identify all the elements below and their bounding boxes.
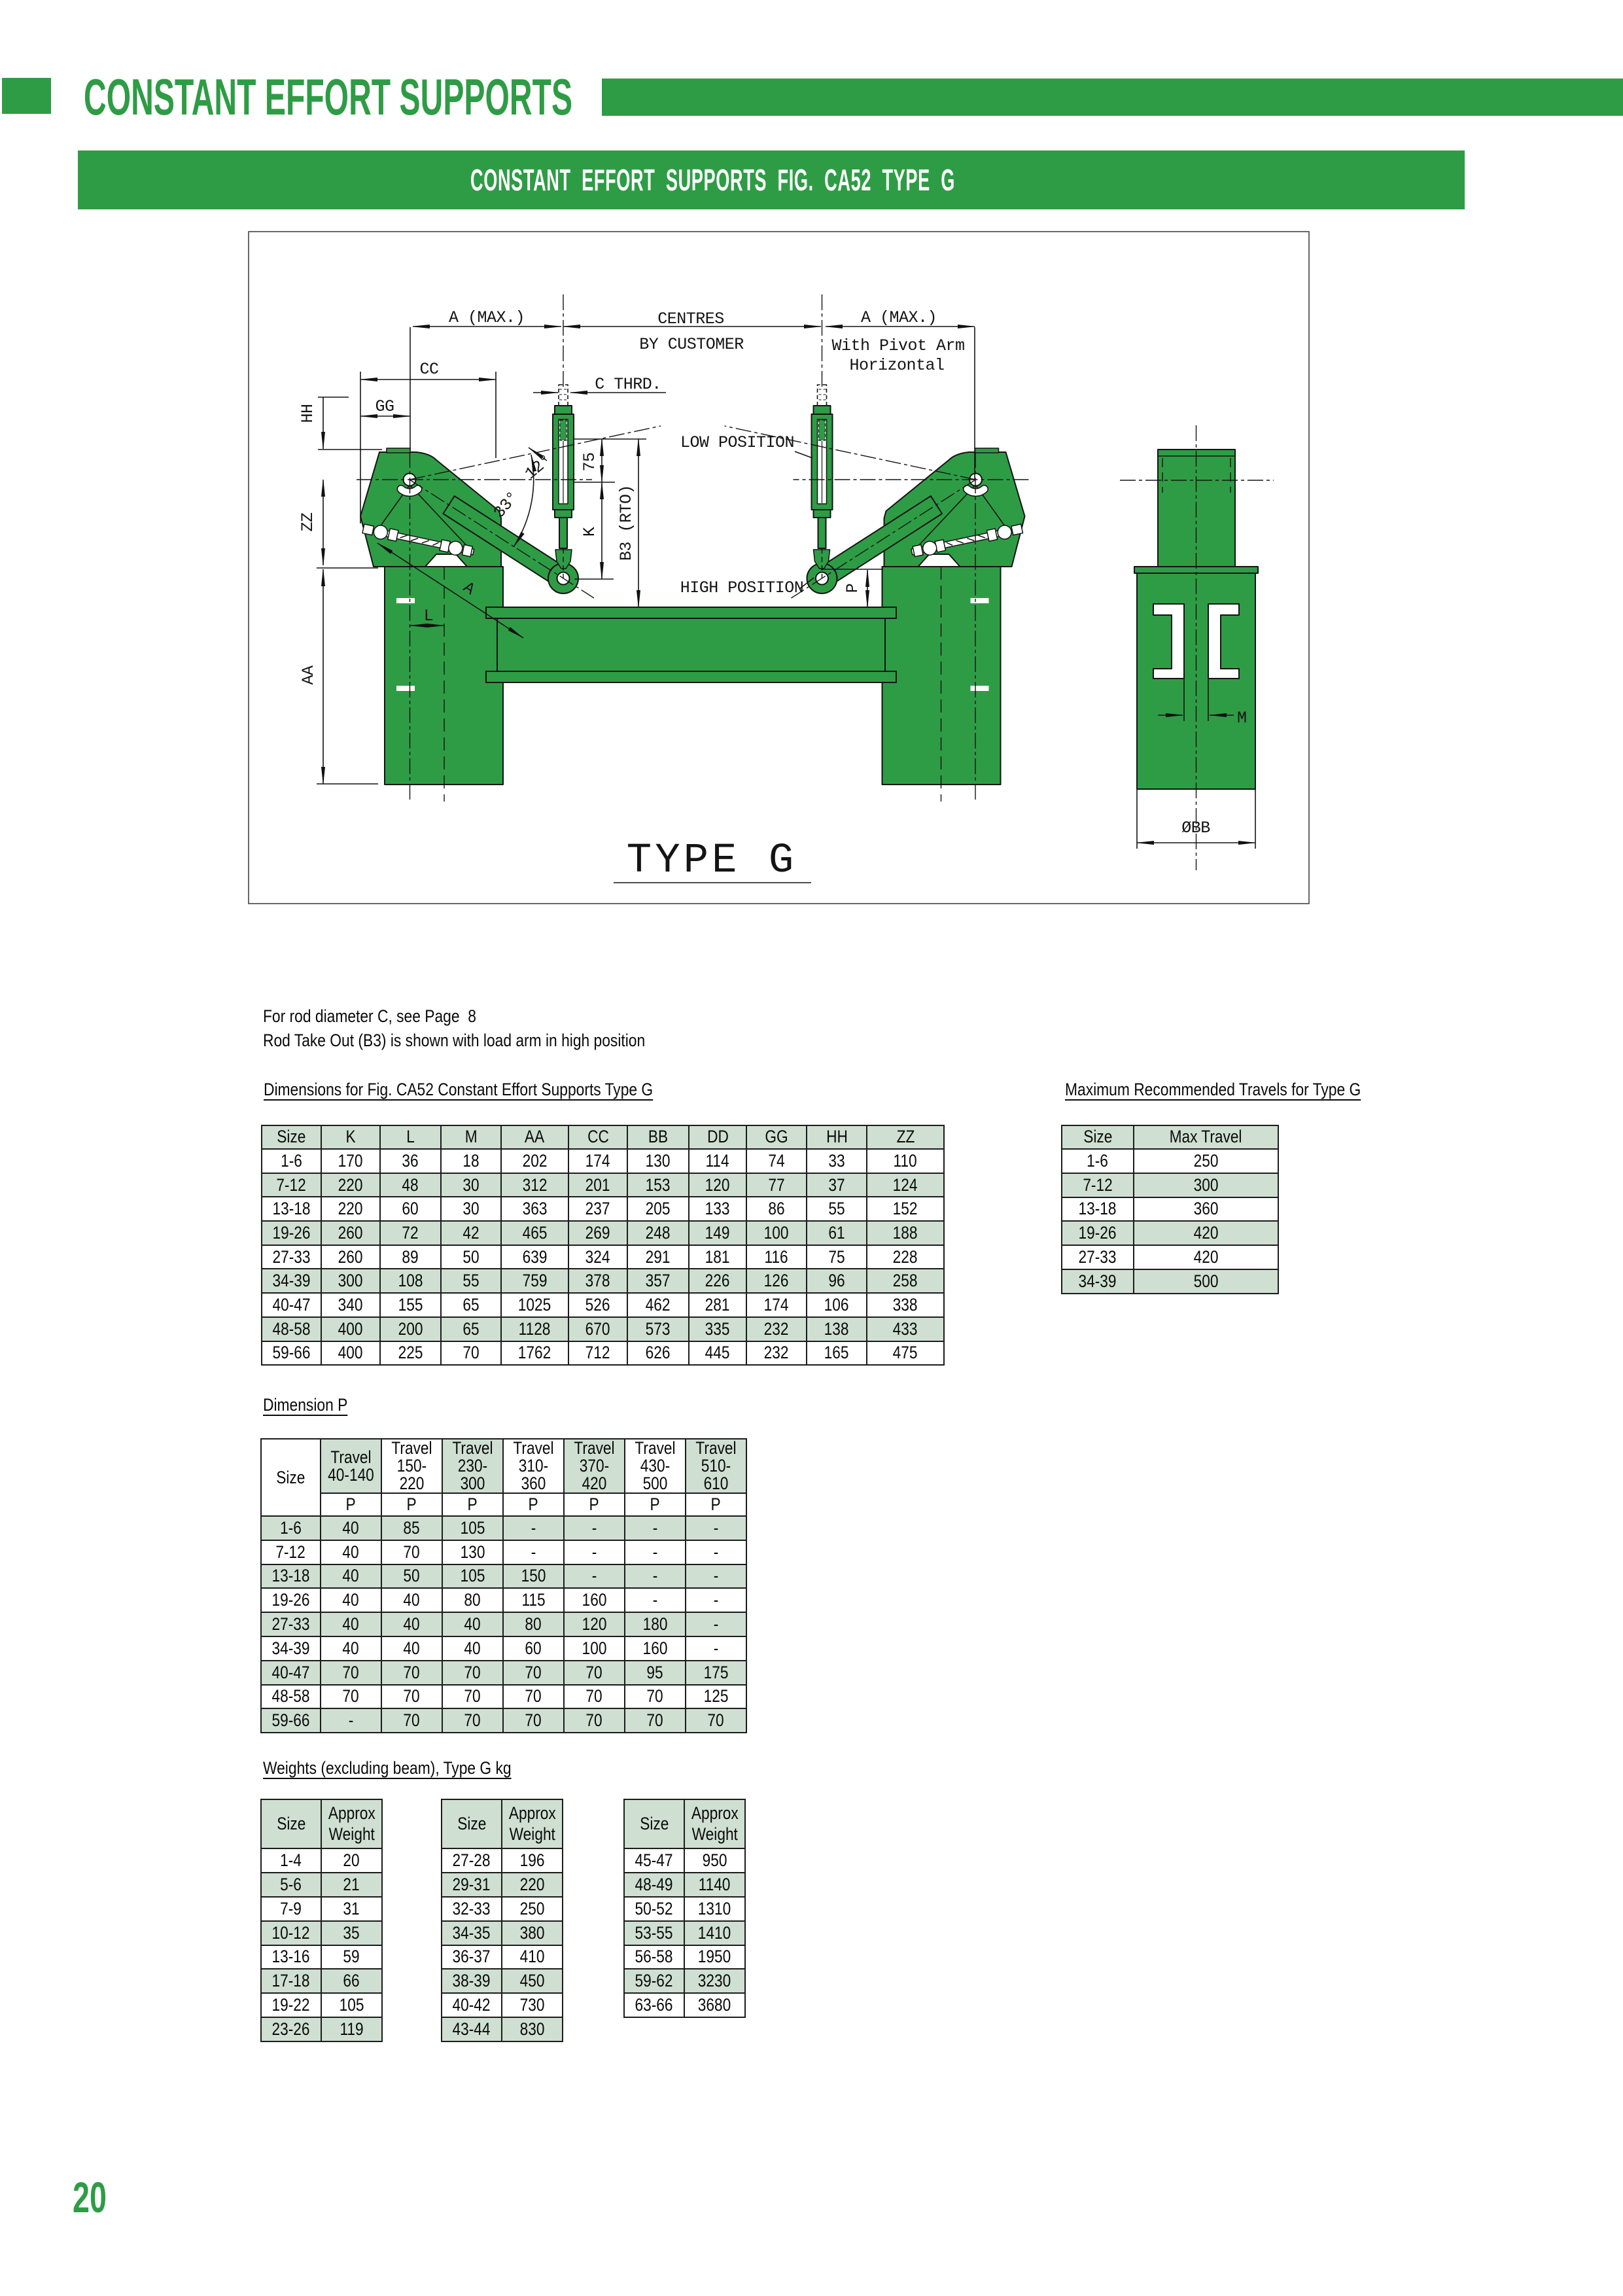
svg-text:C THRD.: C THRD. (595, 375, 661, 394)
svg-text:GG: GG (375, 397, 394, 416)
svg-text:TYPE G: TYPE G (627, 838, 797, 885)
svg-text:A (MAX.): A (MAX.) (861, 308, 937, 327)
svg-text:75: 75 (580, 452, 599, 471)
svg-text:Horizontal: Horizontal (849, 356, 944, 375)
svg-text:12°: 12° (521, 451, 555, 484)
svg-text:HIGH POSITION: HIGH POSITION (680, 578, 804, 597)
svg-text:With Pivot Arm: With Pivot Arm (831, 336, 964, 355)
svg-text:LOW POSITION: LOW POSITION (680, 433, 794, 452)
svg-text:M: M (1237, 709, 1247, 728)
svg-text:B3 (RTO): B3 (RTO) (617, 485, 636, 561)
svg-text:K: K (580, 527, 599, 537)
svg-text:P: P (843, 584, 862, 593)
svg-text:ZZ: ZZ (298, 512, 317, 532)
svg-text:ØBB: ØBB (1181, 819, 1210, 838)
svg-text:AA: AA (299, 665, 318, 685)
svg-text:A (MAX.): A (MAX.) (449, 308, 525, 327)
svg-text:HH: HH (298, 404, 317, 423)
svg-text:CC: CC (419, 360, 438, 379)
svg-text:BY CUSTOMER: BY CUSTOMER (639, 335, 744, 354)
svg-text:L: L (424, 607, 434, 626)
svg-text:CENTRES: CENTRES (657, 309, 724, 328)
